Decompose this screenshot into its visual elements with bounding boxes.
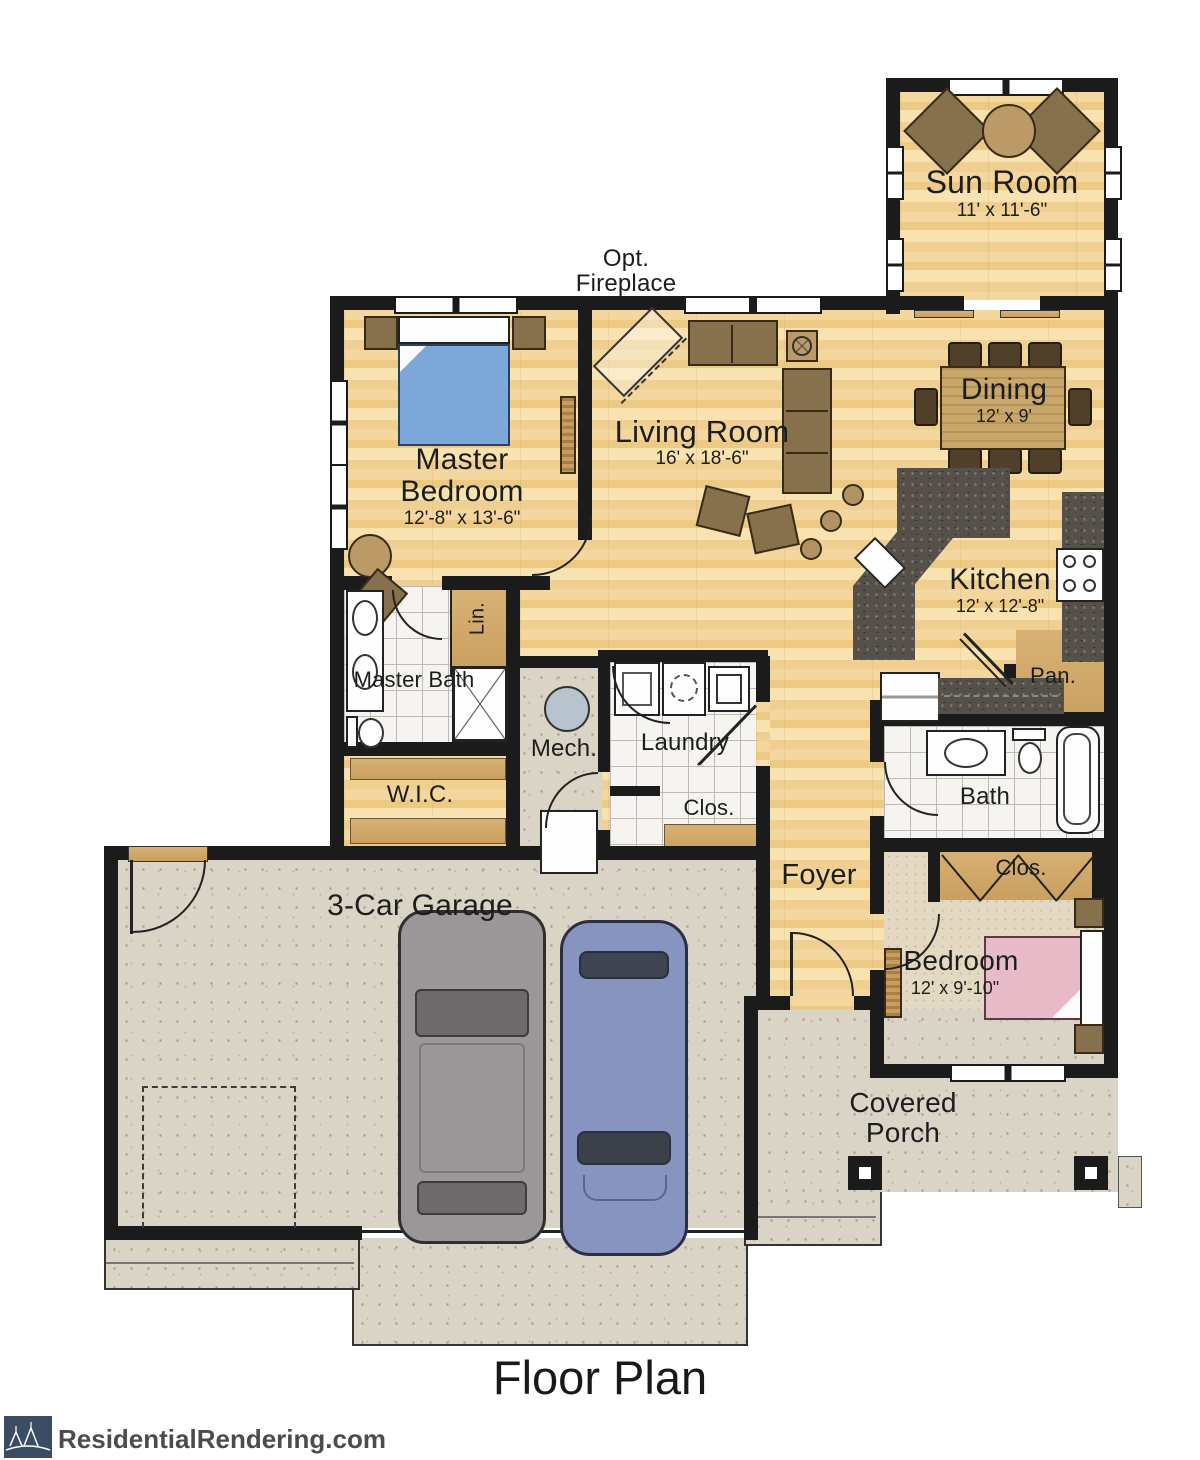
porch-step-line xyxy=(746,1216,876,1218)
porch-post xyxy=(1074,1156,1108,1190)
room-label-bedroom: Bedroom xyxy=(896,946,1026,976)
wall xyxy=(870,970,884,1078)
car-windshield xyxy=(577,1131,671,1165)
window xyxy=(330,380,348,466)
room-label-master-bath: Master Bath xyxy=(352,668,476,691)
watermark-site-name: ResidentialRendering.com xyxy=(58,1424,386,1455)
room-label-linen: Lin. xyxy=(467,587,488,651)
suv-rear-window xyxy=(417,1181,527,1215)
window xyxy=(684,296,822,314)
wall xyxy=(886,296,964,310)
window xyxy=(1104,146,1122,200)
car xyxy=(560,920,688,1256)
sunroom-table xyxy=(982,104,1036,158)
wall xyxy=(598,830,610,860)
bathtub-basin xyxy=(1063,733,1091,825)
window xyxy=(886,238,904,292)
wall xyxy=(1062,1064,1118,1078)
room-label-bedroom-closet: Clos. xyxy=(976,856,1066,879)
closet-door-threshold xyxy=(756,702,770,766)
floor-plan: Sun Room 11' x 11'-6" Living Room 16' x … xyxy=(0,0,1200,1460)
dining-chair xyxy=(948,342,982,368)
room-label-mech: Mech. xyxy=(516,736,612,761)
room-dims-master-bedroom: 12'-8" x 13'-6" xyxy=(362,508,562,530)
table-lamp xyxy=(792,336,812,356)
wall xyxy=(598,650,768,662)
kitchen-counter xyxy=(1062,492,1104,548)
bar-stool xyxy=(820,510,842,532)
room-dims-dining: 12' x 9' xyxy=(942,406,1066,427)
porch-post xyxy=(848,1156,882,1190)
room-label-foyer: Foyer xyxy=(754,860,884,891)
wall xyxy=(1040,296,1104,310)
wall xyxy=(870,838,1118,852)
driveway xyxy=(352,1238,748,1346)
wall xyxy=(104,846,118,1240)
cased-opening xyxy=(914,310,974,318)
porch-post-core xyxy=(1085,1167,1097,1179)
wall xyxy=(578,310,592,540)
room-label-sun-room: Sun Room xyxy=(902,166,1102,200)
wall xyxy=(1092,852,1104,902)
dining-chair xyxy=(914,388,938,426)
bed-fold xyxy=(1052,990,1080,1018)
window xyxy=(950,1064,1066,1082)
cased-opening xyxy=(1000,310,1060,318)
suv-roof xyxy=(419,1043,525,1173)
car-hood-line xyxy=(583,1175,667,1201)
nightstand xyxy=(512,316,546,350)
dining-chair xyxy=(1028,342,1062,368)
master-bed-fold xyxy=(400,346,426,372)
wall xyxy=(610,786,660,796)
suv-windshield xyxy=(415,989,529,1037)
toilet-tank xyxy=(1012,728,1046,741)
master-bed-headboard xyxy=(398,316,510,344)
loveseat-cushion-line xyxy=(731,325,733,363)
room-label-garage: 3-Car Garage xyxy=(310,890,530,922)
dining-chair xyxy=(1028,448,1062,474)
window xyxy=(948,78,1064,96)
dryer-door xyxy=(670,674,698,702)
optional-fireplace-label: Opt. Fireplace xyxy=(570,246,682,297)
bed-headboard xyxy=(1080,930,1104,1026)
bar-stool xyxy=(800,538,822,560)
wall xyxy=(870,1064,950,1078)
front-door-threshold xyxy=(790,996,854,1010)
wall xyxy=(506,656,606,668)
room-dims-bedroom: 12' x 9'-10" xyxy=(890,978,1020,999)
left-stoop xyxy=(104,1240,360,1290)
wall xyxy=(506,576,520,860)
room-label-pantry: Pan. xyxy=(1008,664,1098,687)
sink xyxy=(944,738,988,768)
dresser xyxy=(560,396,576,474)
sofa-cushion-line xyxy=(786,410,828,412)
window xyxy=(394,296,518,314)
room-label-dining: Dining xyxy=(942,374,1066,406)
room-label-living-room: Living Room xyxy=(592,416,812,449)
toilet-bowl xyxy=(358,718,384,748)
wall xyxy=(928,852,940,902)
room-dims-living-room: 16' x 18'-6" xyxy=(592,448,812,470)
toilet-tank xyxy=(346,716,358,748)
residential-rendering-logo-icon xyxy=(4,1416,52,1458)
wall xyxy=(744,996,790,1010)
loveseat xyxy=(688,320,778,366)
porch-side-steps xyxy=(1118,1156,1142,1208)
counter-dash xyxy=(944,695,1058,699)
dining-chair xyxy=(1068,388,1092,426)
wall xyxy=(756,656,770,702)
wall xyxy=(1104,78,1118,1078)
suv xyxy=(398,910,546,1244)
room-dims-kitchen: 12' x 12'-8" xyxy=(900,596,1100,617)
page-title: Floor Plan xyxy=(0,1350,1200,1405)
room-label-master-bedroom: Master Bedroom xyxy=(362,444,562,508)
sink xyxy=(352,600,378,636)
bathtub xyxy=(1056,726,1100,834)
nightstand xyxy=(1074,1024,1104,1054)
water-heater xyxy=(544,686,590,732)
wic-shelf-top xyxy=(350,758,506,780)
window xyxy=(1104,238,1122,292)
dining-chair xyxy=(988,342,1022,368)
accent-table xyxy=(348,534,392,578)
laundry-tub-basin xyxy=(716,674,742,704)
room-label-kitchen: Kitchen xyxy=(900,564,1100,596)
nightstand xyxy=(1074,898,1104,928)
room-dims-sun-room: 11' x 11'-6" xyxy=(902,200,1102,222)
porch-steps xyxy=(744,1192,882,1246)
porch-post-core xyxy=(859,1167,871,1179)
wall xyxy=(442,576,550,590)
room-label-laundry: Laundry xyxy=(612,730,758,755)
bar-stool xyxy=(842,484,864,506)
toilet-bowl xyxy=(1018,742,1042,774)
window xyxy=(330,464,348,550)
third-bay-outline xyxy=(142,1086,296,1228)
wall xyxy=(104,1226,362,1240)
refrigerator xyxy=(880,672,940,722)
room-label-wic: W.I.C. xyxy=(360,782,480,807)
stoop-step-line xyxy=(106,1262,354,1264)
car-rear-window xyxy=(579,951,669,979)
room-label-hall-closet: Clos. xyxy=(664,796,754,819)
room-label-bath: Bath xyxy=(930,784,1040,809)
wall xyxy=(744,1004,758,1240)
laundry-tub xyxy=(708,666,750,712)
wic-shelf-bottom xyxy=(350,818,506,844)
room-label-covered-porch: Covered Porch xyxy=(828,1088,978,1147)
nightstand xyxy=(364,316,398,350)
